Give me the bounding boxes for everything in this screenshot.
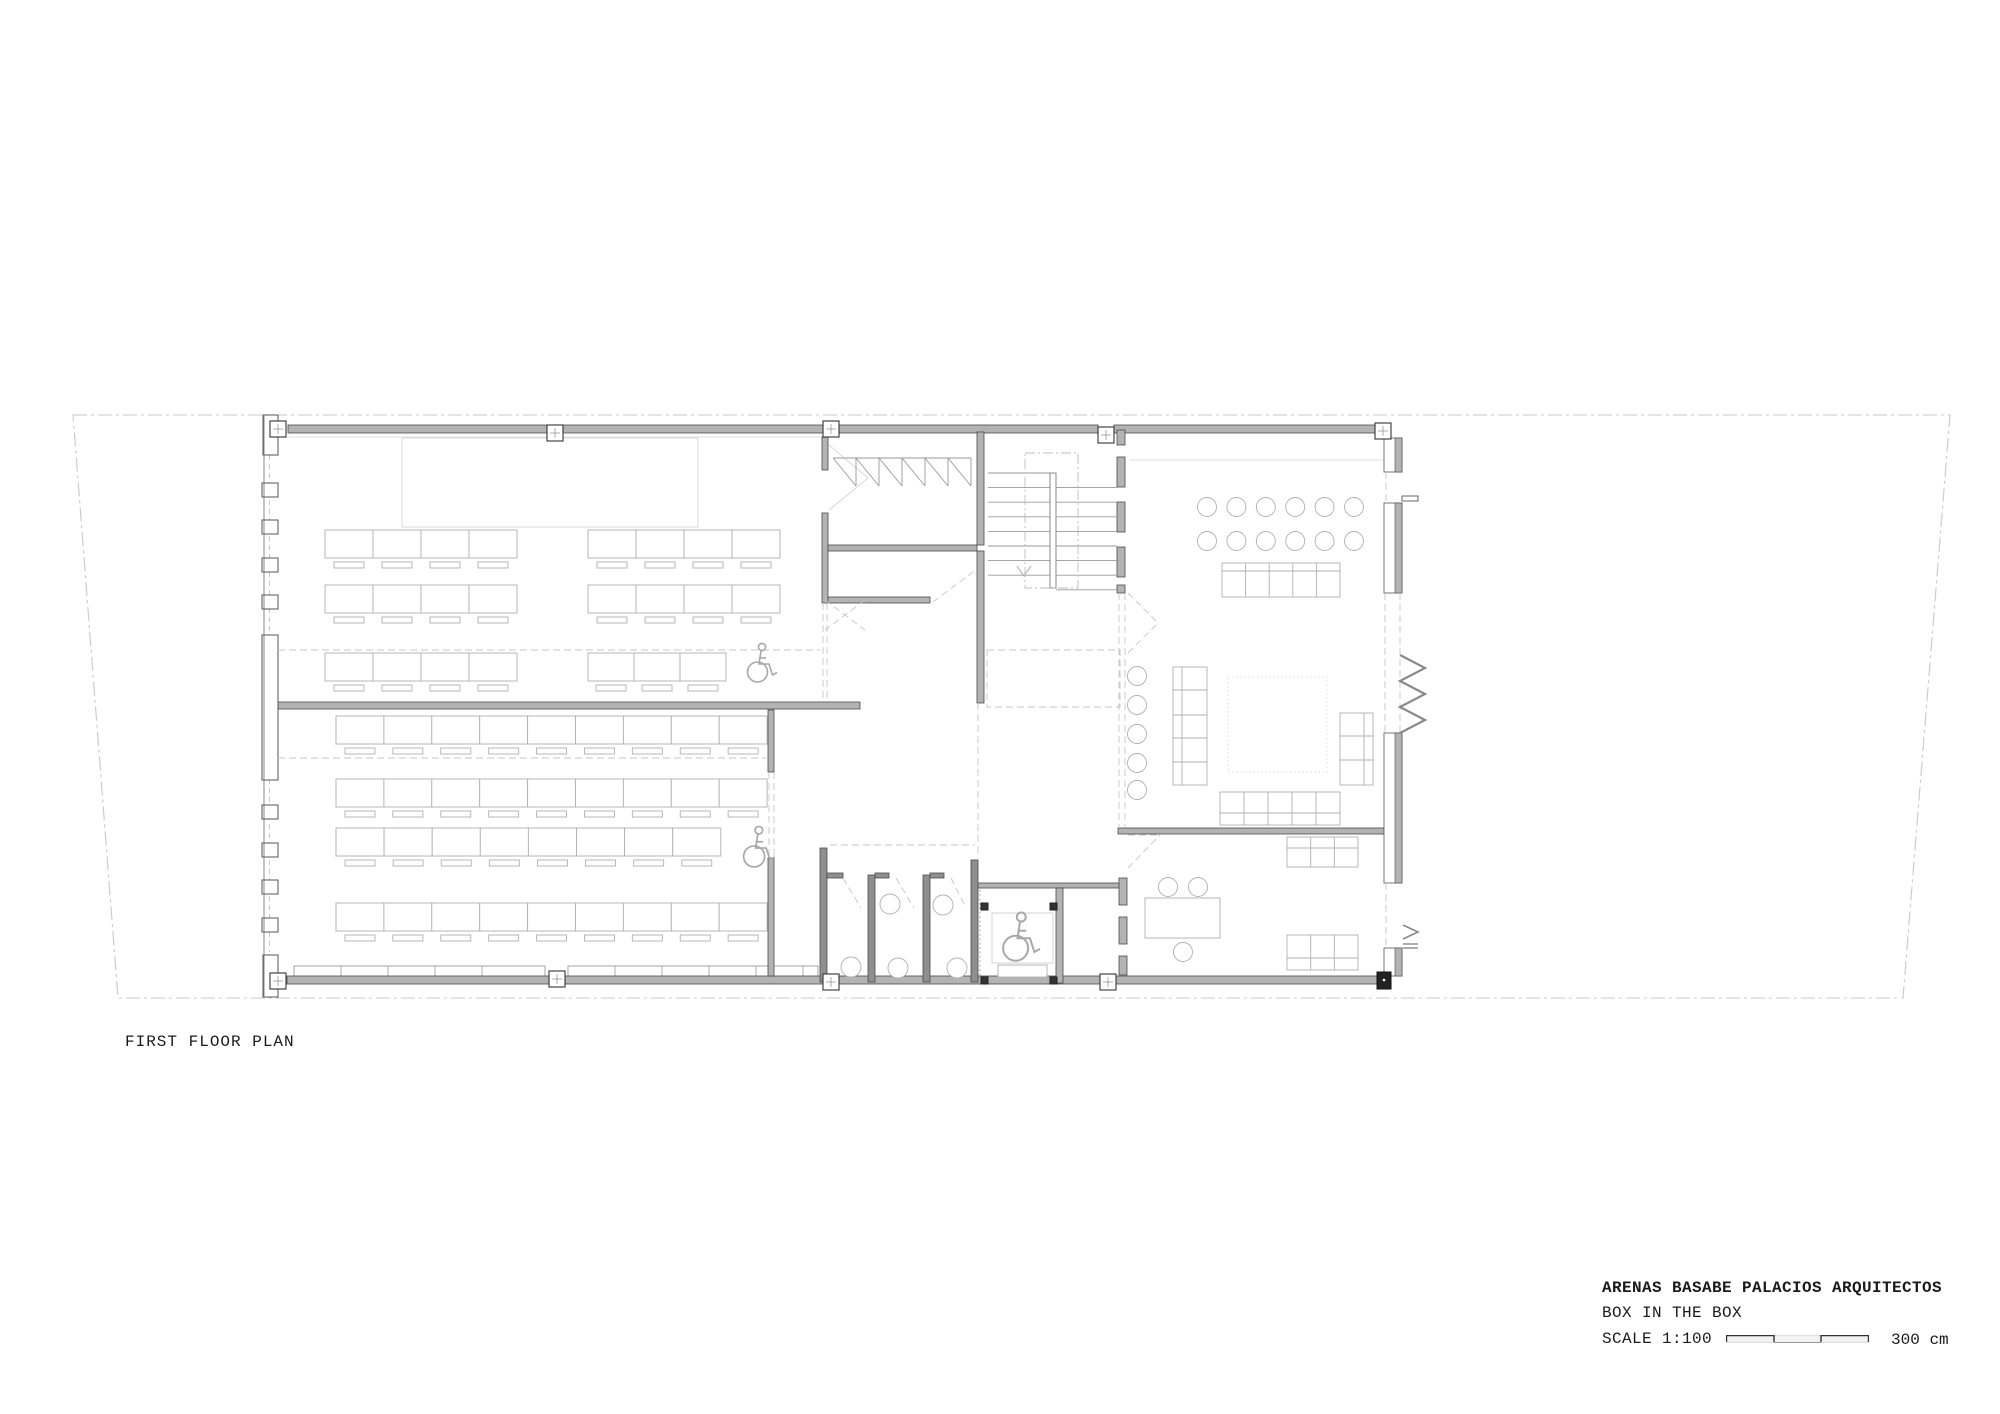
scale-bar [1726, 1335, 1869, 1345]
wheelchair-icon [748, 643, 778, 682]
floor-plan-drawing [0, 0, 2000, 1414]
folding-door-symbol [1400, 655, 1425, 733]
scale-length: 300 cm [1891, 1331, 1949, 1349]
project-name: BOX IN THE BOX [1602, 1304, 1962, 1329]
firm-name: ARENAS BASABE PALACIOS ARQUITECTOS [1602, 1279, 1962, 1304]
drawing-sheet: FIRST FLOOR PLAN ARENAS BASABE PALACIOS … [0, 0, 2000, 1414]
scale-row: SCALE 1:100 300 cm [1602, 1329, 1962, 1349]
scale-label: SCALE 1:100 [1602, 1330, 1712, 1348]
staircase [988, 453, 1117, 590]
door-swings-and-openings [278, 445, 1400, 948]
title-block: ARENAS BASABE PALACIOS ARQUITECTOS BOX I… [1602, 1279, 1962, 1349]
furniture [325, 498, 1373, 985]
plan-title: FIRST FLOOR PLAN [125, 1033, 295, 1051]
wheelchair-icon [1003, 913, 1040, 961]
